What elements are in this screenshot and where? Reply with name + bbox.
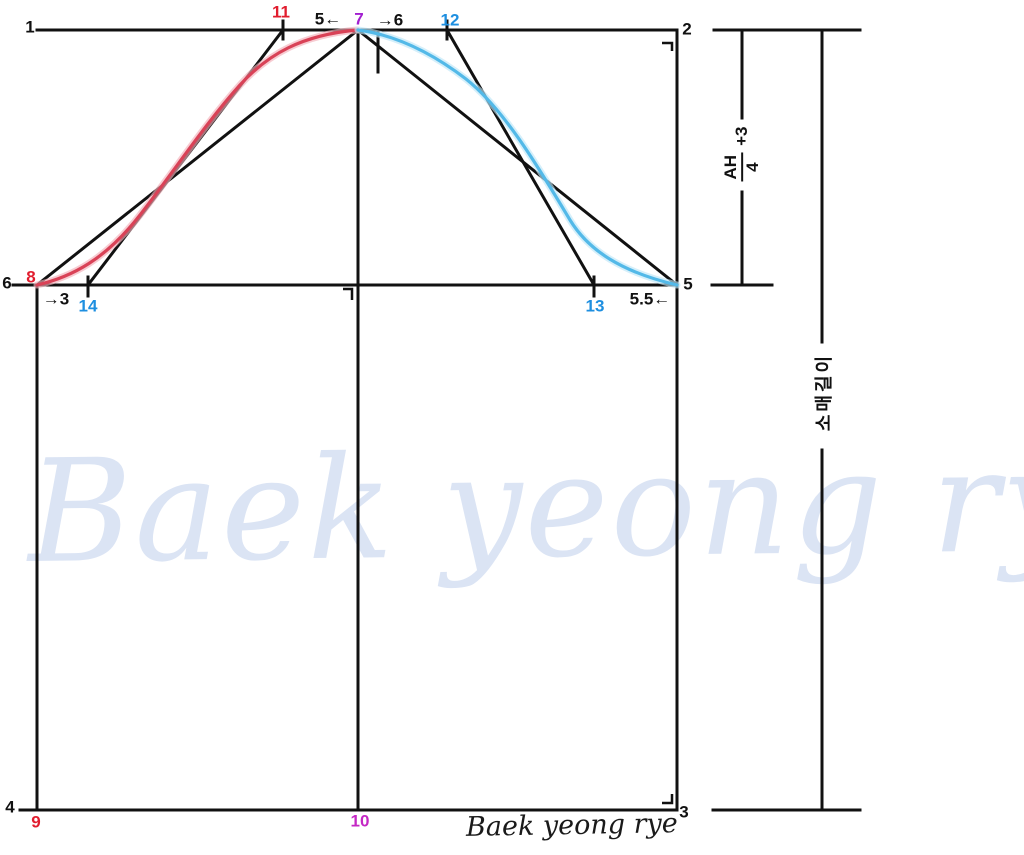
annotation-ease-3-right: →3 [43, 291, 69, 308]
ah-measurement-label: AH 4 +3 [722, 127, 762, 182]
ah-fraction: AH 4 [722, 153, 762, 182]
annotation-ease-5-left: 5← [315, 11, 341, 28]
point-label-11: 11 [272, 4, 290, 21]
point-label-9: 9 [31, 814, 40, 831]
signature-text: Baek yeong rye [466, 808, 678, 843]
annotation-ease-6-right: →6 [377, 12, 403, 29]
sleeve-length-label: 소매길이 [810, 353, 836, 431]
point-label-8: 8 [26, 269, 35, 286]
point-label-10: 10 [351, 813, 370, 830]
point-label-3: 3 [679, 804, 688, 821]
point-label-2: 2 [682, 21, 691, 38]
ah-fraction-denominator: 4 [743, 153, 762, 182]
point-label-6: 6 [2, 275, 11, 292]
point-label-12: 12 [441, 12, 460, 29]
point-label-13: 13 [586, 298, 605, 315]
point-label-1: 1 [25, 19, 34, 36]
ah-fraction-numerator: AH [722, 153, 743, 182]
point-label-14: 14 [79, 298, 98, 315]
annotation-ease-5-5-left: 5.5← [630, 291, 671, 308]
point-label-5: 5 [683, 276, 692, 293]
sleeve-pattern-diagram: Baek yeong rye [0, 0, 1024, 855]
ah-fraction-suffix: +3 [732, 127, 752, 146]
labels-layer: 12345678910111213145←→6→35.5← [0, 0, 1024, 855]
point-label-4: 4 [5, 799, 14, 816]
point-label-7: 7 [354, 11, 363, 28]
